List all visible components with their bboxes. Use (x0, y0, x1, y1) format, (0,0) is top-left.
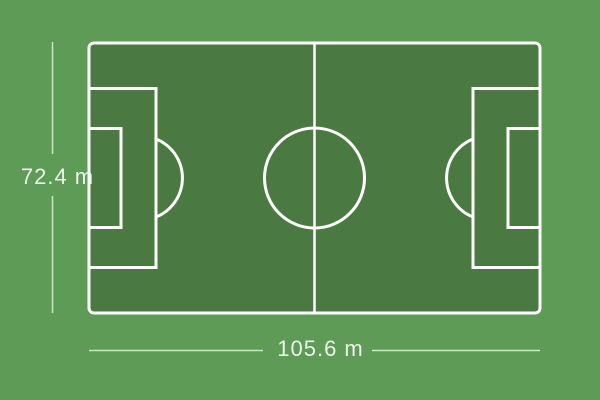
field-dimension-diagram: 72.4 m 105.6 m (0, 0, 600, 400)
height-dimension-label: 72.4 m (21, 164, 94, 189)
width-dimension-label: 105.6 m (277, 336, 364, 361)
diagram-canvas: 72.4 m 105.6 m (0, 0, 600, 400)
